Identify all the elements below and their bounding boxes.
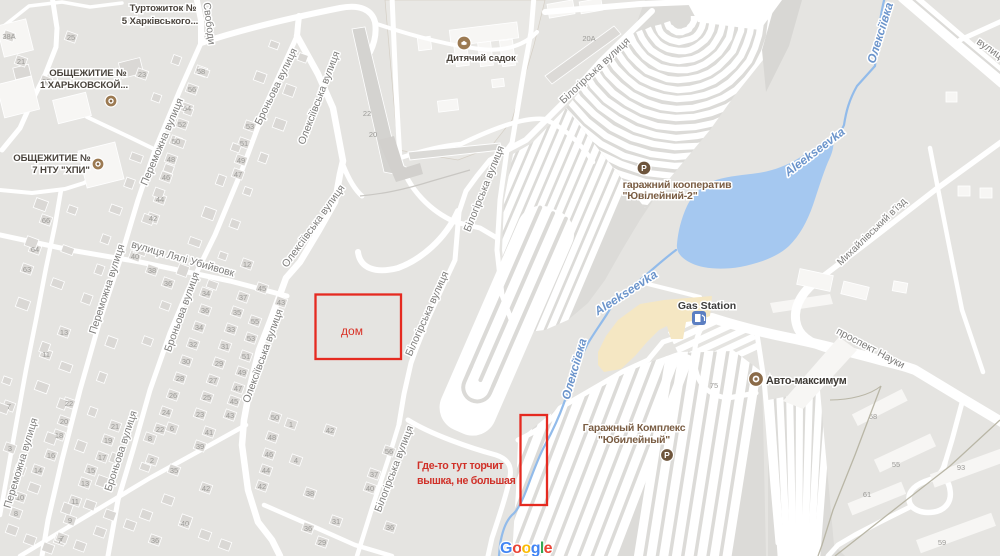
svg-text:42: 42 (149, 214, 157, 223)
svg-text:29: 29 (215, 359, 223, 368)
svg-text:7 НТУ "ХПИ": 7 НТУ "ХПИ" (32, 165, 90, 176)
svg-text:42: 42 (202, 484, 210, 493)
svg-text:42: 42 (258, 482, 266, 491)
svg-text:P: P (664, 450, 670, 460)
svg-text:26: 26 (169, 391, 177, 400)
svg-text:35: 35 (170, 466, 178, 475)
svg-text:59: 59 (938, 538, 946, 547)
svg-text:58: 58 (197, 67, 205, 76)
svg-text:34: 34 (195, 323, 203, 332)
svg-text:7: 7 (60, 534, 64, 543)
svg-text:20: 20 (369, 130, 377, 139)
svg-text:P: P (641, 163, 647, 173)
svg-text:55: 55 (251, 317, 259, 326)
svg-text:19: 19 (104, 436, 112, 445)
svg-text:вышка, не большая: вышка, не большая (417, 475, 516, 487)
svg-text:63: 63 (23, 265, 31, 274)
svg-text:48: 48 (268, 433, 276, 442)
svg-text:47: 47 (234, 170, 242, 179)
svg-text:51: 51 (240, 139, 248, 148)
svg-text:39: 39 (196, 442, 204, 451)
svg-text:18: 18 (55, 431, 63, 440)
svg-text:20А: 20А (582, 34, 595, 43)
svg-text:20: 20 (60, 417, 68, 426)
svg-text:Туртожиток №: Туртожиток № (130, 3, 197, 14)
svg-text:38А: 38А (2, 32, 15, 41)
svg-text:1 ХАРЬКОВСКОЙ...: 1 ХАРЬКОВСКОЙ... (40, 79, 128, 91)
svg-text:2: 2 (150, 456, 154, 465)
svg-text:ОБЩЕЖИТИЕ №: ОБЩЕЖИТИЕ № (49, 68, 127, 79)
svg-text:53: 53 (246, 122, 254, 131)
svg-text:23: 23 (196, 410, 204, 419)
svg-text:17: 17 (98, 453, 106, 462)
svg-text:38: 38 (148, 266, 156, 275)
svg-text:25: 25 (203, 393, 211, 402)
svg-text:12: 12 (243, 260, 251, 269)
svg-text:G: G (500, 540, 512, 556)
svg-text:Авто-максимум: Авто-максимум (766, 375, 847, 387)
svg-text:Gas Station: Gas Station (678, 300, 736, 312)
svg-text:36: 36 (151, 536, 159, 545)
svg-text:23: 23 (138, 70, 146, 79)
svg-text:50: 50 (172, 137, 180, 146)
svg-text:36: 36 (201, 306, 209, 315)
svg-text:28: 28 (176, 374, 184, 383)
svg-text:15: 15 (87, 466, 95, 475)
svg-text:34: 34 (202, 289, 210, 298)
svg-text:24: 24 (162, 408, 170, 417)
svg-text:22: 22 (65, 399, 73, 408)
svg-text:9: 9 (68, 516, 72, 525)
svg-text:51: 51 (242, 352, 250, 361)
svg-text:37: 37 (370, 470, 378, 479)
svg-text:3: 3 (8, 444, 12, 453)
svg-text:4: 4 (294, 456, 298, 465)
svg-text:30: 30 (182, 357, 190, 366)
svg-text:дом: дом (341, 324, 363, 338)
svg-text:32: 32 (189, 340, 197, 349)
svg-text:Гаражный Комплекс: Гаражный Комплекс (583, 422, 686, 434)
svg-text:1: 1 (289, 420, 293, 429)
svg-text:38: 38 (306, 489, 314, 498)
svg-text:16: 16 (47, 451, 55, 460)
svg-text:43: 43 (277, 298, 285, 307)
svg-text:50: 50 (271, 413, 279, 422)
svg-text:36: 36 (386, 523, 394, 532)
svg-text:52: 52 (178, 120, 186, 129)
svg-text:ОБЩЕЖИТИЕ №: ОБЩЕЖИТИЕ № (13, 153, 91, 164)
svg-text:22: 22 (363, 109, 371, 118)
svg-text:22: 22 (156, 425, 164, 434)
svg-text:56: 56 (188, 85, 196, 94)
svg-text:Где-то тут торчит: Где-то тут торчит (417, 460, 503, 472)
svg-text:36: 36 (164, 279, 172, 288)
svg-text:25: 25 (67, 33, 75, 42)
svg-text:43: 43 (226, 411, 234, 420)
svg-text:56: 56 (385, 447, 393, 456)
svg-text:44: 44 (156, 195, 164, 204)
svg-text:46: 46 (162, 173, 170, 182)
svg-text:66: 66 (42, 216, 50, 225)
svg-text:5 Харківського...: 5 Харківського... (122, 16, 199, 27)
svg-text:33: 33 (227, 325, 235, 334)
svg-text:41: 41 (205, 428, 213, 437)
svg-text:35: 35 (233, 308, 241, 317)
svg-text:45: 45 (258, 284, 266, 293)
svg-text:75: 75 (710, 381, 718, 390)
svg-text:47: 47 (234, 384, 242, 393)
svg-text:27: 27 (209, 376, 217, 385)
svg-text:93: 93 (957, 463, 965, 472)
svg-text:8: 8 (14, 509, 18, 518)
svg-text:40: 40 (366, 484, 374, 493)
svg-text:29: 29 (318, 538, 326, 547)
svg-text:31: 31 (332, 517, 340, 526)
svg-text:31: 31 (221, 342, 229, 351)
svg-text:21: 21 (17, 57, 25, 66)
svg-text:13: 13 (60, 328, 68, 337)
svg-text:53: 53 (247, 334, 255, 343)
svg-text:13: 13 (81, 479, 89, 488)
svg-text:36: 36 (304, 524, 312, 533)
svg-text:42: 42 (326, 426, 334, 435)
svg-text:7: 7 (7, 402, 11, 411)
svg-text:45: 45 (230, 397, 238, 406)
svg-text:40: 40 (181, 519, 189, 528)
svg-text:49: 49 (237, 156, 245, 165)
svg-text:"Ювілейний-2": "Ювілейний-2" (623, 190, 698, 202)
svg-text:48: 48 (167, 155, 175, 164)
svg-text:49: 49 (238, 368, 246, 377)
svg-text:e: e (544, 540, 553, 556)
svg-text:64: 64 (31, 245, 39, 254)
svg-text:14: 14 (34, 466, 42, 475)
svg-text:37: 37 (239, 293, 247, 302)
svg-text:Дитячий садок: Дитячий садок (446, 53, 516, 64)
svg-text:46: 46 (265, 450, 273, 459)
svg-text:6: 6 (170, 424, 174, 433)
svg-text:55: 55 (892, 460, 900, 469)
svg-text:61: 61 (863, 490, 871, 499)
svg-text:21: 21 (111, 422, 119, 431)
svg-text:11: 11 (71, 497, 79, 506)
svg-text:"Юбилейный": "Юбилейный" (598, 434, 670, 446)
svg-text:8: 8 (148, 434, 152, 443)
svg-text:11: 11 (42, 350, 50, 359)
svg-text:40: 40 (131, 252, 139, 261)
svg-text:44: 44 (262, 466, 270, 475)
